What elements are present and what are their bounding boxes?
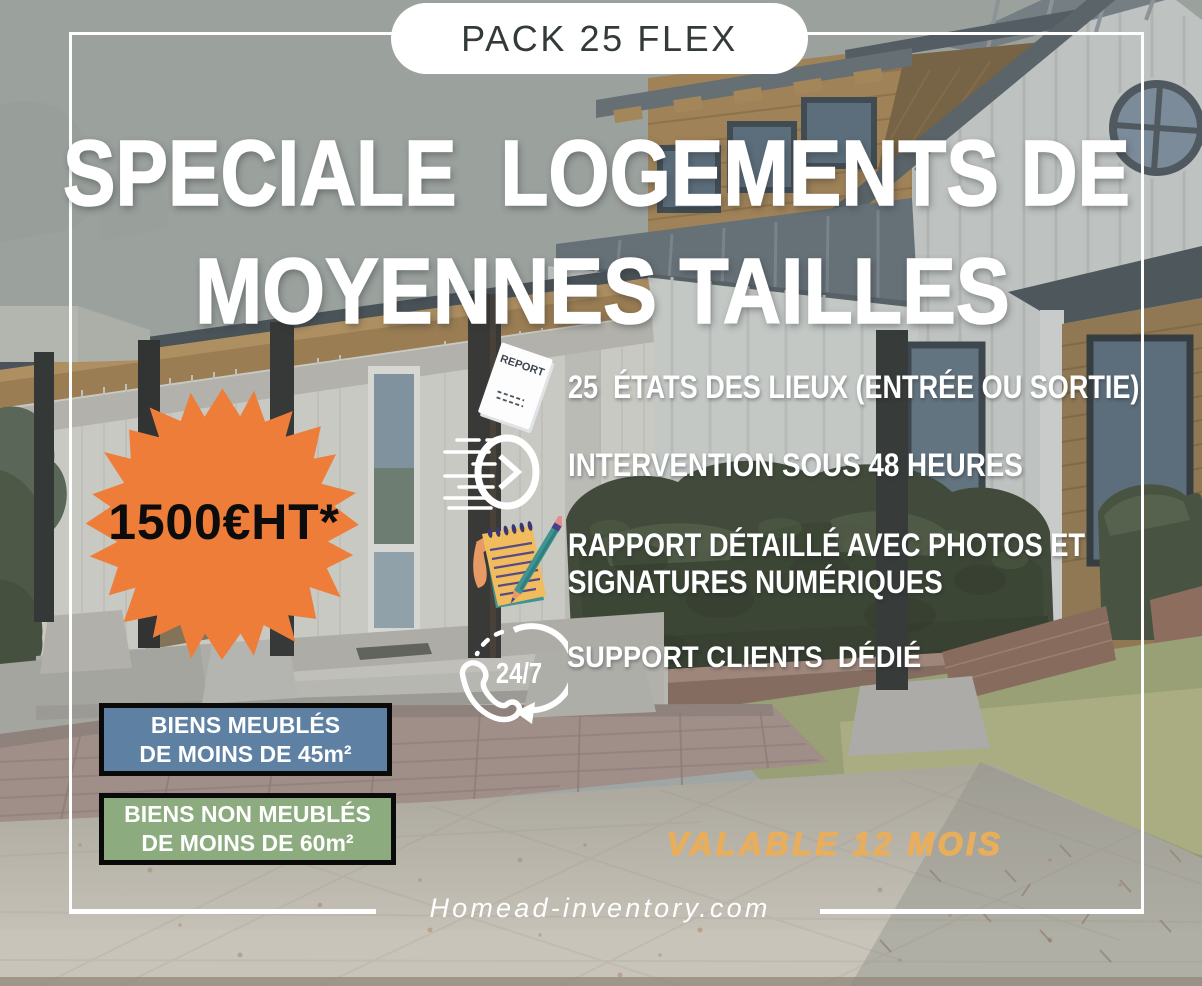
svg-text:1500€HT*: 1500€HT*	[108, 494, 340, 550]
svg-text:24/7: 24/7	[496, 657, 542, 690]
